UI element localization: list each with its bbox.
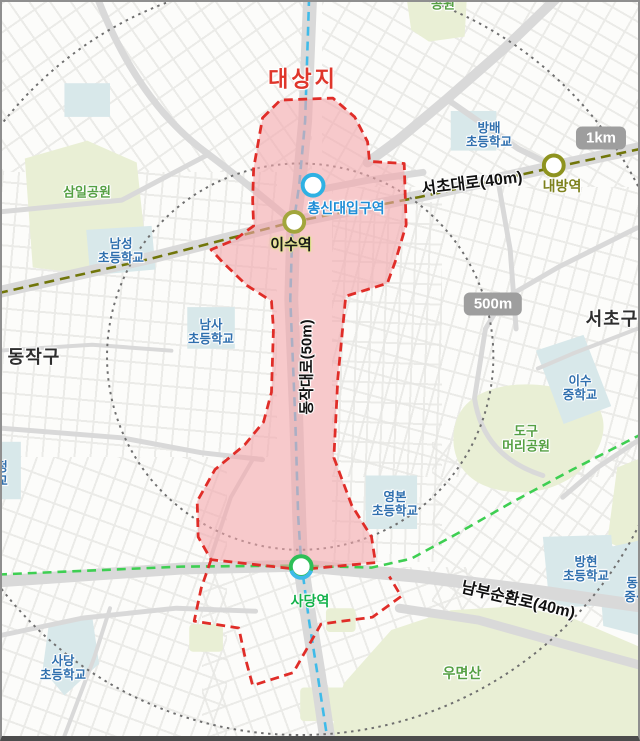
station-marker-chongshin	[303, 175, 324, 196]
scale-badge-1km: 1km	[576, 127, 626, 150]
site-location-map: 대상지 동작구 서초구 서초대로(40m) 동작대로(50m) 남부순환로(40…	[0, 0, 640, 741]
scale-badge-500m: 500m	[464, 293, 522, 316]
station-marker-naebang	[544, 156, 564, 176]
map-vector-layer	[2, 2, 638, 736]
station-marker-isu	[284, 212, 304, 232]
